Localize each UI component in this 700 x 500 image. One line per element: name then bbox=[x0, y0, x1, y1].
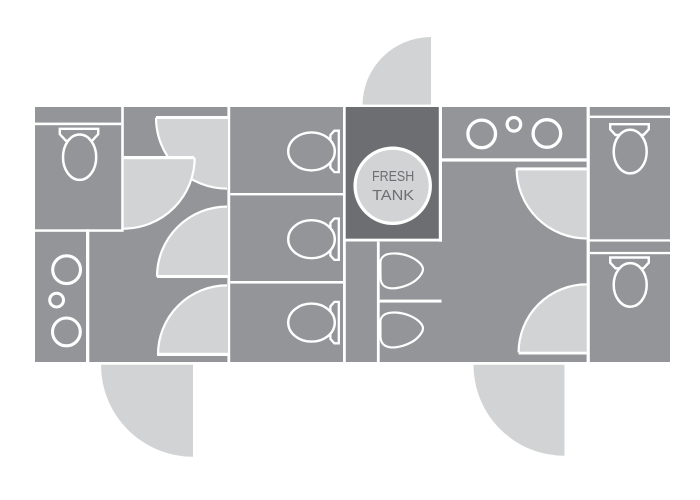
svg-text:TANK: TANK bbox=[372, 187, 414, 204]
svg-text:FRESH: FRESH bbox=[372, 168, 414, 185]
